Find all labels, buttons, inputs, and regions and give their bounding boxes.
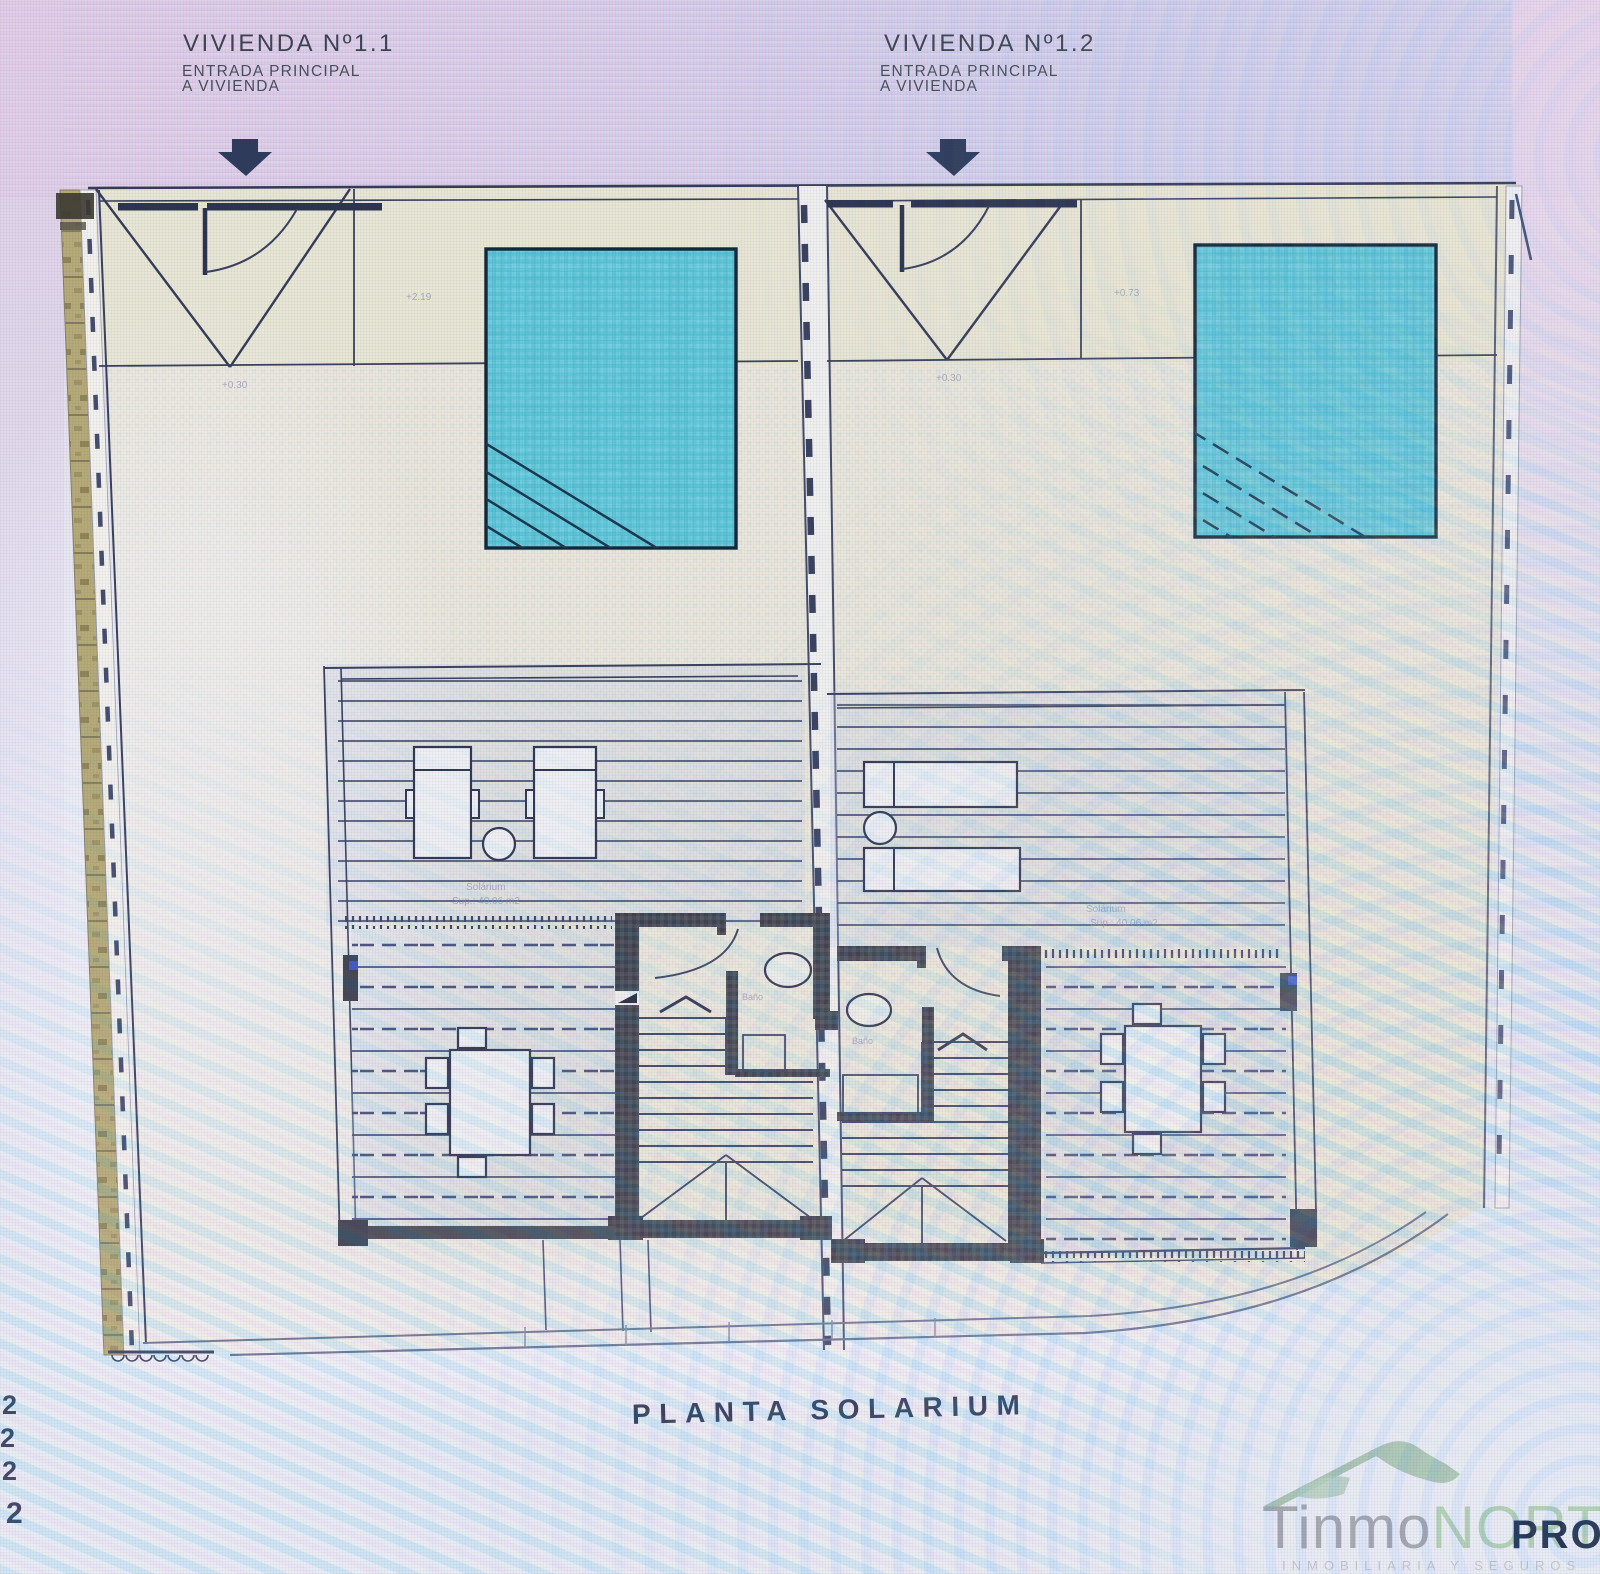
svg-text:Baño: Baño	[742, 992, 763, 1002]
svg-text:Sup.: 40.06 m2: Sup.: 40.06 m2	[1090, 918, 1158, 929]
svg-text:Solárium: Solárium	[1086, 904, 1125, 915]
svg-text:INMOBILIARIA Y SEGUROS: INMOBILIARIA Y SEGUROS	[1282, 1558, 1581, 1573]
svg-text:+0.30: +0.30	[222, 380, 248, 391]
svg-text:Baño: Baño	[852, 1036, 873, 1046]
svg-text:+0.30: +0.30	[936, 373, 962, 384]
svg-text:+2.19: +2.19	[406, 292, 432, 303]
svg-text:Solárium: Solárium	[466, 882, 505, 893]
svg-text:+0.73: +0.73	[1114, 288, 1140, 299]
svg-text:Sup.: 40.06 m2: Sup.: 40.06 m2	[452, 896, 520, 907]
